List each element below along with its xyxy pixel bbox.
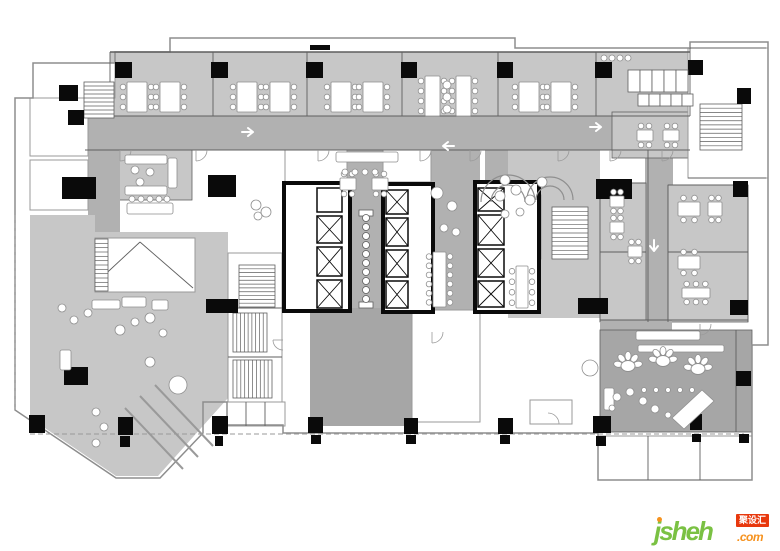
watermark-tld: .com	[737, 530, 763, 544]
floor-plan-svg	[0, 0, 780, 551]
elevator-cores-layer	[284, 182, 539, 312]
floor-plan-page: jsheh 聚设汇 .com	[0, 0, 780, 551]
watermark-dot-icon	[657, 517, 662, 522]
watermark-badge: 聚设汇	[736, 514, 769, 527]
watermark: jsheh 聚设汇 .com	[654, 514, 778, 548]
watermark-brand: jsheh	[654, 516, 712, 547]
